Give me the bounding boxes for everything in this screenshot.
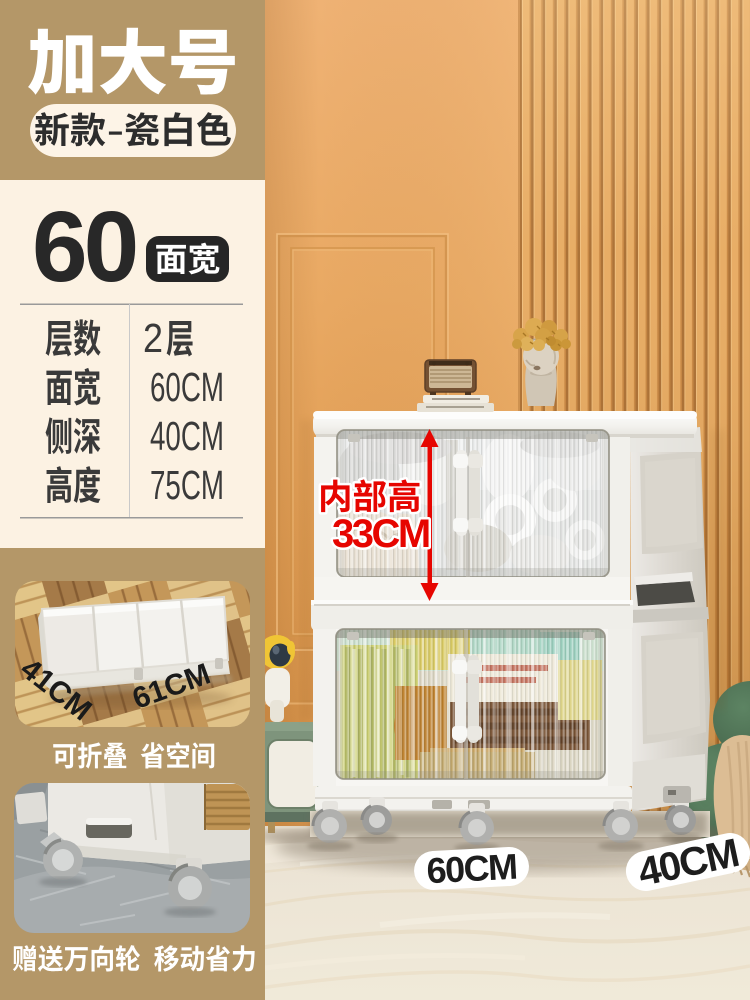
svg-text:60: 60 [32, 191, 136, 303]
svg-text:33CM: 33CM [332, 512, 429, 556]
svg-text:75CM: 75CM [150, 462, 224, 508]
svg-text:2: 2 [143, 315, 163, 361]
svg-text:60CM: 60CM [150, 364, 224, 410]
svg-text:40CM: 40CM [150, 413, 224, 459]
svg-text:60CM: 60CM [425, 846, 517, 892]
